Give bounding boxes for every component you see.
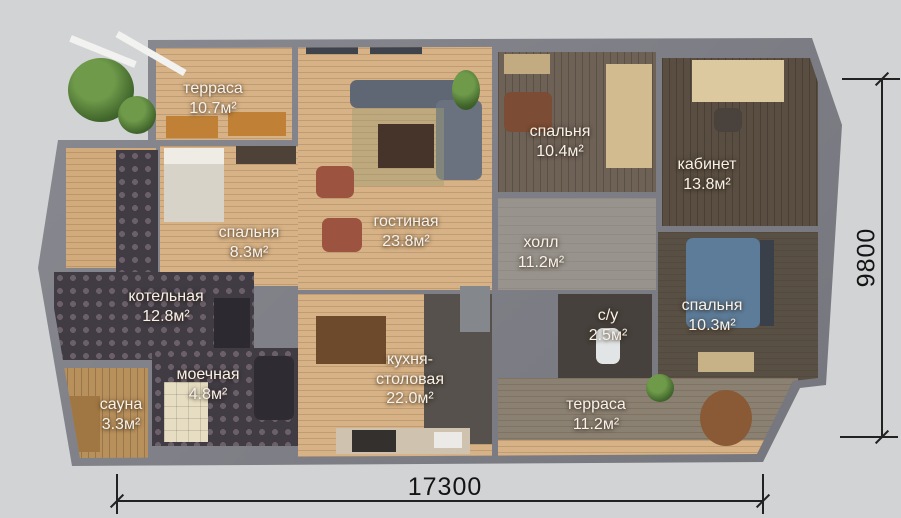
bed-pillows — [164, 148, 224, 164]
dimension-height-label: 9800 — [853, 208, 882, 308]
plant — [118, 96, 156, 134]
fridge — [460, 286, 490, 332]
boiler-unit — [214, 298, 250, 348]
dimension-extension — [762, 474, 764, 514]
dimension-extension — [840, 436, 898, 438]
toilet — [596, 328, 620, 364]
bed — [686, 238, 760, 328]
floor-mat — [164, 382, 208, 442]
wardrobe — [606, 64, 652, 168]
dimension-extension — [116, 474, 118, 514]
room-floor-hall — [498, 198, 656, 290]
corridor-tile-runner — [116, 150, 158, 278]
shower — [254, 356, 294, 420]
plant — [646, 374, 674, 402]
dining-table — [316, 316, 386, 364]
armchair — [316, 166, 354, 198]
desk — [692, 60, 784, 102]
stove — [352, 430, 396, 452]
floor-plan-canvas: терраса 10.7м² спальня 8.3м² гостиная 23… — [0, 0, 901, 518]
plant — [452, 70, 480, 110]
dimension-extension — [842, 78, 900, 80]
wardrobe — [236, 146, 296, 164]
dimension-width-label: 17300 — [395, 473, 495, 502]
armchair — [322, 218, 362, 252]
sink — [434, 432, 462, 448]
coffee-table — [378, 124, 434, 168]
terrace-bench — [228, 112, 286, 136]
sofa — [504, 92, 552, 132]
office-chair — [714, 108, 742, 132]
desk — [504, 54, 550, 74]
bench — [698, 352, 754, 372]
bed-headboard — [760, 240, 774, 326]
terrace-bench — [166, 116, 218, 138]
hanging-chair — [700, 390, 752, 446]
